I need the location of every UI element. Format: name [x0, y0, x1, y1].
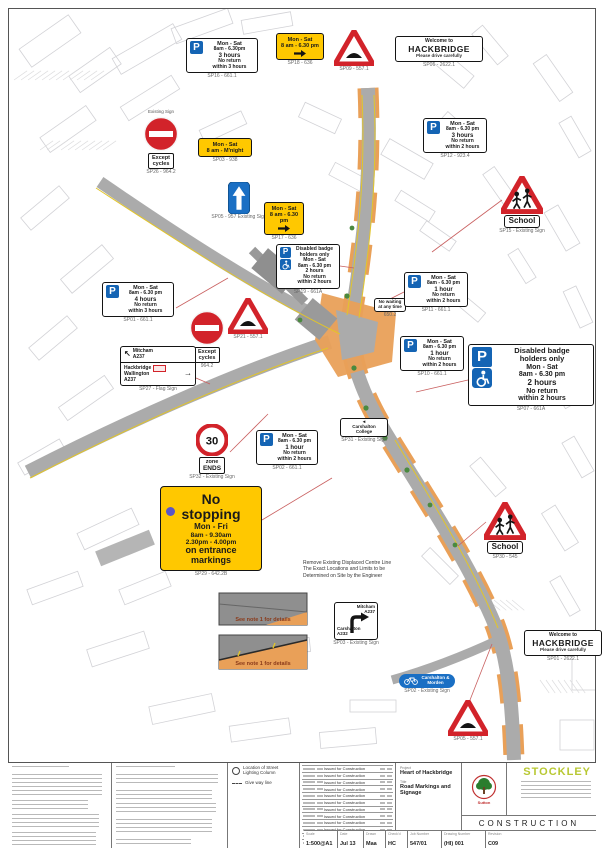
sign-p-mid: P Mon - Sat8am - 6.30 pm1 hourNo returnw…	[256, 430, 318, 472]
revision-row: Issued for Construction	[302, 806, 393, 813]
sign-text: within 3 hours	[121, 309, 170, 315]
sign-reference: 650.2	[384, 313, 397, 319]
sign-yellow-mnight: Mon - Sat8 am - M'nightSP03 - 938	[198, 138, 252, 164]
no-entry-icon	[189, 310, 225, 346]
road-hump-warning-icon	[228, 298, 268, 334]
revision-row: Issued for Construction	[302, 799, 393, 806]
sign-text: within 2 hours	[419, 363, 460, 369]
field-value: Maa	[366, 841, 383, 847]
sign-text: No	[165, 492, 257, 507]
sign-reference: SP02 - 661.1	[272, 466, 301, 472]
sign-text: holders only	[494, 355, 590, 363]
field-date: Date Jul 13	[338, 831, 364, 848]
sign-reference: SP19 - 661A	[294, 290, 322, 296]
revision-description: Issued for Construction	[324, 820, 379, 825]
field-label: Drawn	[366, 832, 383, 836]
revision-description: Issued for Construction	[324, 787, 379, 792]
drawing-status: CONSTRUCTION	[479, 819, 579, 828]
field-value: 547/01	[410, 841, 439, 847]
revision-row: Issued for Construction	[302, 792, 393, 799]
sign-reference: SP26 - 964.2	[146, 170, 175, 176]
sign-reference: SP15 - Existing Sign	[499, 229, 545, 235]
sign-text: 8am - 6.30 pm	[423, 281, 464, 287]
sign-p-top-left: P Mon - Sat8am - 6.30pm3 hoursNo returnw…	[186, 38, 258, 80]
sign-text: Please drive carefully	[528, 648, 598, 653]
sign-yellow-top: Mon - Sat8 am - 6.30 pm SP18 - 636	[276, 33, 324, 67]
sign-reference: SP11 - 661.1	[422, 308, 451, 314]
sign-text: A237	[124, 378, 182, 384]
sign-reference: SP10 - 661.1	[417, 372, 446, 378]
sign-no-waiting: No waitingat any time650.2	[374, 298, 406, 318]
sign-text: cycles	[152, 161, 170, 167]
sign-hump-mid: SP21 - 557.1	[226, 298, 270, 341]
drawing-title: Road Markings and Signage	[400, 784, 457, 796]
note-line: Determined on Site by the Engineer	[303, 573, 382, 579]
sign-detail-grey: See note 1 for details	[218, 592, 308, 626]
sign-reference: SP05 - 957 Existing Sign	[211, 215, 266, 221]
detail-label: See note 1 for details	[218, 617, 308, 623]
sign-disabled-mid: P Disabled badgeholders onlyMon - Sat8am…	[276, 244, 340, 295]
sign-p-left: P Mon - Sat8am - 6.30 pm4 hoursNo return…	[102, 282, 174, 324]
sign-reference: 964.2	[201, 364, 214, 370]
field-drawn: Drawn Maa	[364, 831, 386, 848]
field-drawing-number: Drawing Number (HI) 001	[442, 831, 486, 848]
project-name: Heart of Hackbridge	[400, 770, 457, 776]
up-left-arrow-icon: ↖	[124, 350, 131, 359]
sign-text: within 2 hours	[494, 395, 590, 403]
revision-row: Issued for Construction	[302, 779, 393, 786]
sign-p-right-2: P Mon - Sat8am - 6.30 pm1 hourNo returnw…	[400, 336, 464, 378]
revision-description: Issued for Construction	[324, 793, 379, 798]
field-value: C09	[488, 841, 594, 847]
school-plate: School	[487, 541, 524, 554]
sign-school-right: SchoolSP15 - Existing Sign	[500, 176, 544, 234]
sign-text: within 3 hours	[205, 65, 254, 71]
sign-text: within 2 hours	[293, 280, 336, 286]
sign-reference: SP09 - 557.1	[339, 67, 368, 73]
revision-description: Issued for Construction	[324, 766, 379, 771]
give-way-line-icon	[232, 783, 242, 784]
field-value: 1:500@A1	[306, 841, 335, 847]
sign-reference: SP18 - 636	[287, 61, 312, 67]
bent-arrow-icon	[344, 612, 370, 634]
sign-reference: SP03 - 938	[212, 158, 237, 164]
sign-reference: SP12 - 923.4	[440, 154, 469, 160]
revision-row: Issued for Construction	[302, 819, 393, 826]
parking-icon: P	[404, 339, 417, 352]
wheelchair-icon	[280, 259, 291, 270]
road-hump-warning-icon	[334, 30, 374, 66]
sign-noentry-top: Existing Sign ExceptcyclesSP26 - 964.2	[139, 110, 183, 176]
sign-welcome-top: Welcome toHACKBRIDGEPlease drive careful…	[395, 36, 483, 68]
sign-reference: SP29 - 642.2B	[195, 572, 228, 578]
30-speed-limit-icon: 30	[196, 424, 228, 456]
bicycle-icon	[404, 676, 418, 685]
sign-arrow-up: SP05 - 957 Existing Sign	[226, 182, 252, 221]
revision-description: Issued for Construction	[324, 773, 379, 778]
sign-text: at any time	[377, 305, 403, 310]
sign-reference: SP07 - 661A	[517, 407, 545, 413]
street-lighting-column-icon	[232, 767, 240, 775]
parking-icon: P	[190, 41, 203, 54]
legend-label: Give way line	[245, 781, 272, 786]
field-label: Revision	[488, 832, 594, 836]
field-job-number: Job Number 547/01	[408, 831, 442, 848]
sign-text: Please drive carefully	[399, 54, 479, 59]
sign-hump-top: SP09 - 557.1	[332, 30, 376, 73]
sign-junction-sign: MitchamA237 CarshaltonA232 SP03 - Existi…	[334, 602, 378, 647]
brand-wordmark: STOCKLEY	[523, 766, 591, 778]
sign-text: within 2 hours	[442, 145, 483, 151]
parking-icon: P	[106, 285, 119, 298]
sign-reference: SP31 - Existing Sign	[341, 438, 387, 444]
brand-address	[521, 781, 591, 799]
sign-p-right-top: P Mon - Sat8am - 6.30 pm3 hoursNo return…	[423, 118, 487, 160]
sign-school-bottom: SchoolSP30 - 545	[482, 502, 528, 560]
field-label: Job Number	[410, 832, 439, 836]
no-entry-icon	[143, 116, 179, 152]
school-plate: School	[504, 215, 541, 228]
sign-p-right-1: P Mon - Sat8am - 6.30 pm1 hourNo returnw…	[404, 272, 468, 314]
sign-text: A237	[133, 355, 153, 361]
sign-text: 8am - 6.30 pm	[419, 345, 460, 351]
sign-zone-30: 30zoneENDSSP32 - Existing Sign	[192, 424, 232, 481]
existing-sign-label: Existing Sign	[148, 110, 174, 115]
sign-text: ENDS	[203, 465, 221, 472]
detail-label: See note 1 for details	[218, 661, 308, 667]
sign-cycle-sign: Carshalton &MordenSP02 - Existing Sign	[398, 674, 456, 694]
field-check-d: Check'd HC	[386, 831, 408, 848]
field-value: HC	[388, 841, 405, 847]
route-patch	[153, 365, 166, 372]
camera-dot-icon	[166, 507, 175, 516]
parking-icon: P	[260, 433, 273, 446]
field-label: Scale	[306, 832, 335, 836]
revision-description: Issued for Construction	[324, 814, 379, 819]
revision-row: Issued for Construction	[302, 812, 393, 819]
school-children-warning-icon	[501, 176, 543, 214]
sign-reference: SP32 - Existing Sign	[189, 475, 235, 481]
sign-text: markings	[165, 556, 257, 566]
sign-removal-note: Remove Existing Displaced Centre LineThe…	[303, 560, 433, 579]
sign-welcome-bottom: Welcome toHACKBRIDGEPlease drive careful…	[524, 630, 602, 662]
sign-text: No return	[494, 388, 590, 396]
field-label: Drawing Number	[444, 832, 483, 836]
legend-item: Give way line	[232, 781, 295, 786]
sign-reference: SP02 - Existing Sign	[404, 689, 450, 695]
field-label: Check'd	[388, 832, 405, 836]
fields-strip: Scale 1:500@A1Date Jul 13Drawn MaaCheck'…	[304, 830, 596, 848]
field-label: Date	[340, 832, 361, 836]
sign-yellow-mid: Mon - Sat8 am - 6.30 pm SP17 - 636	[264, 202, 304, 242]
right-arrow-icon: →	[184, 370, 192, 379]
field-value: Jul 13	[340, 841, 361, 847]
sign-text: 8am - 6.30 pm	[275, 439, 314, 445]
sutton-logo-text: Sutton	[478, 800, 491, 805]
tree-icon	[471, 774, 497, 800]
sign-text: cycles	[198, 355, 216, 361]
drawing-page: Welcome toHACKBRIDGEPlease drive careful…	[0, 0, 605, 856]
field-scale: Scale 1:500@A1	[304, 831, 338, 848]
legend-label: Location of Street Lighting Column	[243, 766, 295, 776]
sign-reference: SP03 - Existing Sign	[333, 641, 379, 647]
title-block: Location of Street Lighting Column Give …	[8, 762, 596, 848]
revision-description: Issued for Construction	[324, 780, 379, 785]
revision-description: Issued for Construction	[324, 807, 379, 812]
sign-text: Mon - Sat	[494, 364, 590, 372]
field-value: (HI) 001	[444, 841, 483, 847]
sign-reference: SP21 - 557.1	[233, 335, 262, 341]
right-arrow-icon	[294, 50, 306, 57]
parking-icon: P	[280, 247, 291, 258]
sign-text: 2 hours	[494, 379, 590, 388]
sign-text: 8 am - M'night	[202, 148, 248, 154]
right-arrow-icon	[278, 225, 290, 232]
sign-text: College	[343, 430, 385, 435]
parking-icon: P	[472, 347, 492, 367]
signs-layer: Welcome toHACKBRIDGEPlease drive careful…	[0, 0, 605, 762]
revision-row: Issued for Construction	[302, 772, 393, 779]
wheelchair-icon	[472, 368, 492, 388]
sign-text: Morden	[421, 681, 449, 686]
sign-disabled-big: P Disabled badgeholders onlyMon - Sat8am…	[468, 344, 594, 413]
sign-direction-left: ↖ MitchamA237 → Hackbridge WallingtonA23…	[120, 346, 196, 393]
notes-column-2	[112, 763, 228, 848]
sign-reference: SP01 - 2622.1	[547, 657, 579, 663]
sign-detail-orange: See note 1 for details	[218, 634, 308, 670]
parking-icon: P	[427, 121, 440, 134]
sign-text: stopping	[165, 507, 257, 522]
revision-description: Issued for Construction	[324, 800, 379, 805]
sign-text: 8 am - 6.30 pm	[280, 43, 320, 49]
sign-reference: SP27 - Flag Sign	[139, 387, 177, 393]
parking-icon: P	[408, 275, 421, 288]
sign-reference: SP05 - 557.1	[453, 737, 482, 743]
svg-text:30: 30	[206, 436, 219, 448]
sign-reference: SP17 - 636	[271, 236, 296, 242]
notes-column-1	[8, 763, 112, 848]
sutton-logo: Sutton	[462, 763, 507, 815]
sign-text: Mon - Fri	[165, 523, 257, 532]
sign-reference: SP30 - 545	[492, 555, 517, 561]
sign-text: 8am - 6.30 pm	[442, 127, 483, 133]
sign-reference: SP16 - 661.1	[207, 74, 236, 80]
sign-hump-bottom: SP05 - 557.1	[444, 700, 492, 743]
ahead-only-icon	[228, 182, 250, 214]
legend-item: Location of Street Lighting Column	[232, 766, 295, 776]
legend: Location of Street Lighting Column Give …	[228, 763, 300, 848]
sign-reference: SP01 - 661.1	[123, 318, 152, 324]
school-children-warning-icon	[484, 502, 526, 540]
sign-no-stopping: NostoppingMon - Fri8am - 9.30am2.30pm - …	[160, 486, 262, 578]
sign-college: ◄ CarshaltonCollegeSP31 - Existing Sign	[340, 418, 388, 443]
field-revision: Revision C09	[486, 831, 596, 848]
revision-row: Issued for Construction	[302, 785, 393, 792]
revision-row: Issued for Construction	[302, 765, 393, 772]
sign-reference: SP06 - 2622.1	[423, 63, 455, 69]
sign-text: within 2 hours	[275, 457, 314, 463]
road-hump-warning-icon	[448, 700, 488, 736]
sign-text: within 2 hours	[423, 299, 464, 305]
sign-text: 8 am - 6.30 pm	[268, 212, 300, 224]
sign-text: 8am - 9.30am	[165, 532, 257, 539]
